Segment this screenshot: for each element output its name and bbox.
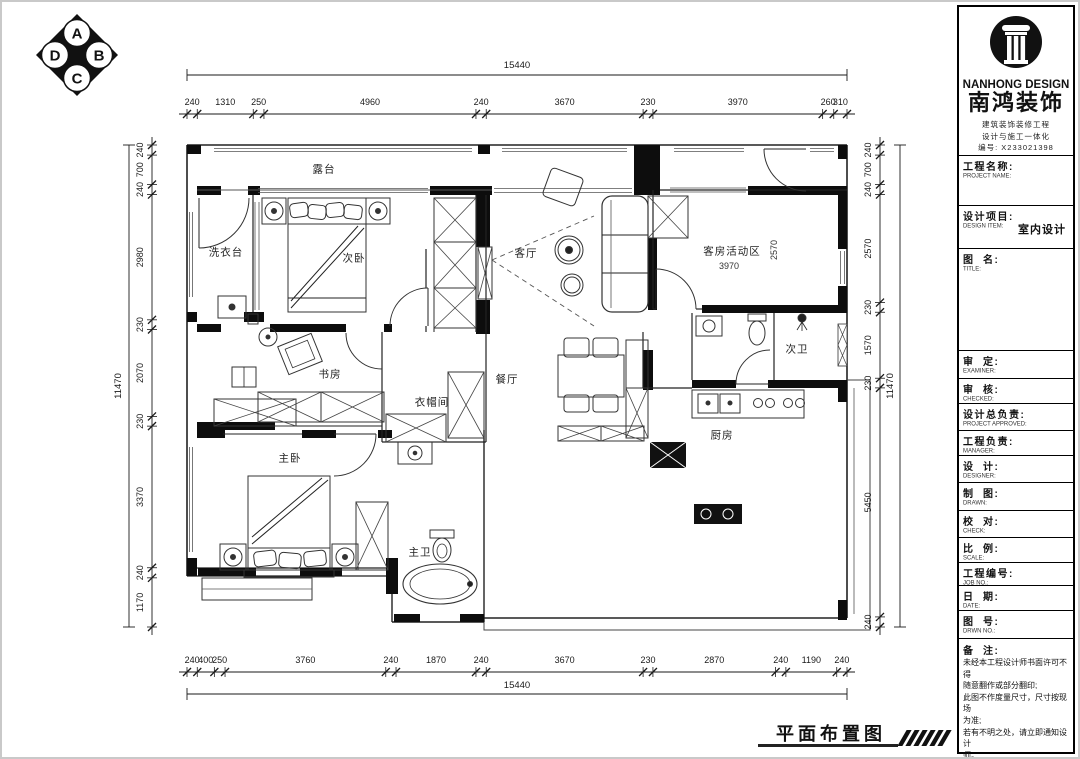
note-line: 为准;	[963, 715, 1069, 727]
title-block-row: 审 定:EXAMINER:	[959, 350, 1073, 378]
notes-title: 备 注:	[963, 642, 1069, 657]
row-label-en: TITLE:	[963, 266, 1053, 272]
title-block-row: 设计总负责:PROJECT APPROVED:	[959, 403, 1073, 430]
title-block-row: 日 期:DATE:	[959, 585, 1073, 610]
plan-walls	[187, 145, 870, 630]
svg-text:240: 240	[773, 655, 788, 665]
svg-text:230: 230	[135, 414, 145, 429]
svg-text:250: 250	[251, 97, 266, 107]
svg-text:310: 310	[833, 97, 848, 107]
svg-text:240: 240	[474, 97, 489, 107]
drawing-caption: 平面布置图	[750, 718, 960, 754]
svg-text:250: 250	[212, 655, 227, 665]
row-label-en: CHECKED:	[963, 396, 1053, 402]
note-line: 师。	[963, 750, 1069, 759]
svg-text:240: 240	[135, 565, 145, 580]
note-line: 此图不作度量尺寸，尺寸按现场	[963, 692, 1069, 715]
row-label-cn: 工程负责:	[963, 433, 1069, 448]
svg-text:230: 230	[641, 655, 656, 665]
title-block-row: 比 例:SCALE:	[959, 537, 1073, 562]
svg-text:11470: 11470	[885, 373, 896, 399]
title-block-row: 工程负责:MANAGER:	[959, 430, 1073, 455]
title-block-row: 设 计:DESIGNER:	[959, 455, 1073, 482]
svg-text:400: 400	[198, 655, 213, 665]
row-label-en: DATE:	[963, 603, 1053, 609]
brand-subtitle-lines: 建筑装饰装修工程设计与施工一体化编号: X233021398	[959, 119, 1073, 154]
svg-text:1870: 1870	[426, 655, 446, 665]
title-block-header: NANHONG DESIGN 南鸿装饰 建筑装饰装修工程设计与施工一体化编号: …	[959, 7, 1073, 155]
drawing-sheet: ABCD 15440240131025049602403670230397026…	[0, 0, 1080, 759]
svg-text:2980: 2980	[135, 247, 145, 267]
brand-subtitle-line: 编号: X233021398	[959, 142, 1073, 154]
svg-text:700: 700	[863, 162, 873, 177]
title-block-row: 校 对:CHECK:	[959, 510, 1073, 537]
caption-underline	[758, 744, 898, 747]
row-label-cn: 工程名称:	[963, 158, 1069, 173]
row-label-en: MANAGER:	[963, 448, 1053, 454]
svg-text:3370: 3370	[135, 487, 145, 507]
svg-text:2070: 2070	[135, 363, 145, 383]
row-label-cn: 日 期:	[963, 588, 1069, 603]
svg-text:3760: 3760	[295, 655, 315, 665]
row-value: 室内设计	[1018, 221, 1066, 237]
row-label-en: PROJECT NAME:	[963, 173, 1053, 179]
svg-text:230: 230	[863, 300, 873, 315]
svg-text:3970: 3970	[728, 97, 748, 107]
company-logo-icon	[987, 15, 1045, 73]
svg-text:240: 240	[474, 655, 489, 665]
svg-text:240: 240	[863, 143, 873, 158]
note-line: 随意翻作或部分翻印;	[963, 680, 1069, 692]
row-label-cn: 比 例:	[963, 540, 1069, 555]
title-block-row: 工程名称:PROJECT NAME:	[959, 155, 1073, 205]
title-block-row: 工程编号:JOB NO.:	[959, 562, 1073, 585]
title-block-row: 设计项目:DESIGN ITEM:室内设计	[959, 205, 1073, 248]
svg-text:1170: 1170	[135, 593, 145, 612]
svg-text:230: 230	[641, 97, 656, 107]
row-label-cn: 设 计:	[963, 458, 1069, 473]
svg-text:230: 230	[863, 376, 873, 391]
note-line: 未经本工程设计师书面许可不得	[963, 657, 1069, 680]
plan-furniture	[214, 167, 847, 604]
row-label-en: DRWN NO.:	[963, 628, 1053, 634]
svg-text:15440: 15440	[504, 680, 530, 691]
svg-text:240: 240	[135, 182, 145, 197]
svg-text:240: 240	[863, 182, 873, 197]
row-label-cn: 图 号:	[963, 613, 1069, 628]
row-label-cn: 设计总负责:	[963, 406, 1069, 421]
caption-text: 平面布置图	[776, 720, 886, 746]
brand-name-cn: 南鸿装饰	[959, 91, 1073, 115]
row-label-cn: 审 核:	[963, 381, 1069, 396]
row-label-cn: 制 图:	[963, 485, 1069, 500]
svg-text:2870: 2870	[704, 655, 724, 665]
row-label-cn: 审 定:	[963, 353, 1069, 368]
svg-text:15440: 15440	[504, 60, 530, 71]
svg-text:240: 240	[863, 614, 873, 629]
svg-text:240: 240	[135, 143, 145, 158]
svg-text:230: 230	[135, 317, 145, 332]
row-label-en: CHECK:	[963, 528, 1053, 534]
svg-text:1310: 1310	[215, 97, 235, 107]
row-label-en: SCALE:	[963, 555, 1053, 561]
floor-plan-drawing: 1544024013102504960240367023039702603102…	[2, 2, 1080, 759]
row-label-cn: 工程编号:	[963, 565, 1069, 580]
svg-text:11470: 11470	[113, 373, 124, 399]
svg-text:2570: 2570	[863, 239, 873, 259]
row-label-en: EXAMINER:	[963, 368, 1053, 374]
title-block-row: 图 号:DRWN NO.:	[959, 610, 1073, 638]
title-block-rows: 工程名称:PROJECT NAME:设计项目:DESIGN ITEM:室内设计图…	[959, 155, 1073, 759]
note-line: 若有不明之处，请立即通知设计	[963, 727, 1069, 750]
row-label-cn: 图 名:	[963, 251, 1069, 266]
row-label-cn: 校 对:	[963, 513, 1069, 528]
title-block: NANHONG DESIGN 南鸿装饰 建筑装饰装修工程设计与施工一体化编号: …	[957, 5, 1075, 754]
row-label-en: PROJECT APPROVED:	[963, 421, 1053, 427]
svg-text:1190: 1190	[802, 655, 821, 665]
svg-text:240: 240	[834, 655, 849, 665]
svg-text:5450: 5450	[863, 492, 873, 512]
title-block-row: 图 名:TITLE:	[959, 248, 1073, 350]
title-block-row: 审 核:CHECKED:	[959, 378, 1073, 403]
svg-text:4960: 4960	[360, 97, 380, 107]
title-block-row: 制 图:DRAWN:	[959, 482, 1073, 510]
svg-text:240: 240	[185, 97, 200, 107]
svg-text:1570: 1570	[863, 335, 873, 355]
svg-text:3670: 3670	[555, 97, 575, 107]
svg-text:3670: 3670	[555, 655, 575, 665]
brand-subtitle-line: 建筑装饰装修工程	[959, 119, 1073, 131]
row-label-en: DRAWN:	[963, 500, 1053, 506]
row-label-en: DESIGNER:	[963, 473, 1053, 479]
caption-hatch-marks	[902, 730, 947, 746]
brand-subtitle-line: 设计与施工一体化	[959, 131, 1073, 143]
svg-text:240: 240	[383, 655, 398, 665]
title-block-notes: 备 注:未经本工程设计师书面许可不得随意翻作或部分翻印;此图不作度量尺寸，尺寸按…	[959, 638, 1073, 759]
svg-text:700: 700	[135, 162, 145, 177]
